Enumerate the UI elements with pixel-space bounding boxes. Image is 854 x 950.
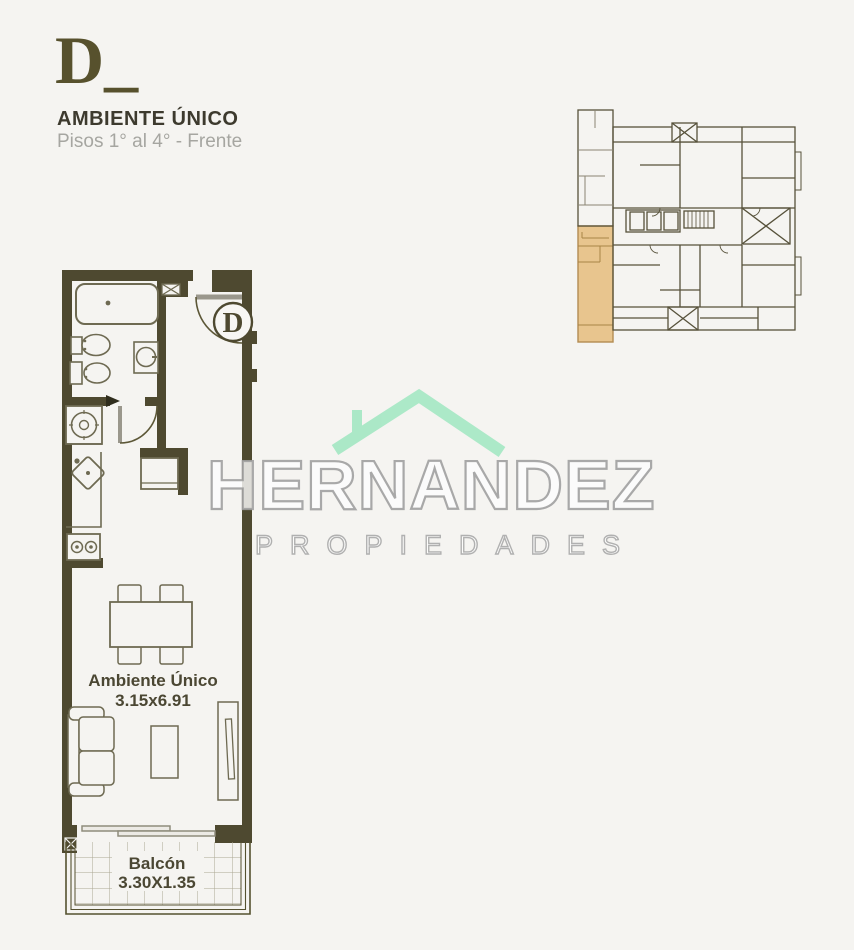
- washbasin: [134, 342, 158, 373]
- dining-table: [110, 602, 192, 647]
- key-plan: [570, 100, 805, 350]
- page-title: AMBIENTE ÚNICO: [57, 108, 238, 131]
- tv-unit: [218, 702, 238, 800]
- kitchen-sink: [71, 456, 105, 490]
- sofa: [68, 707, 114, 796]
- duct-shaft-icon: [162, 284, 180, 295]
- brand-tagline: PROPIEDADES: [255, 532, 637, 559]
- unit-badge-letter: D: [223, 307, 244, 339]
- brand-wordmark: HERNANDEZ: [207, 450, 655, 520]
- page-subtitle: Pisos 1° al 4° - Frente: [57, 131, 242, 153]
- fridge: [141, 458, 178, 489]
- bathtub: [76, 284, 158, 324]
- plan-letter: D_: [55, 26, 138, 94]
- room-label: Ambiente Único: [88, 671, 217, 690]
- toilet: [70, 362, 110, 384]
- balcony-dimensions: 3.30X1.35: [118, 873, 196, 892]
- room-dimensions: 3.15x6.91: [115, 691, 191, 710]
- stove: [67, 534, 100, 560]
- coffee-table: [151, 726, 178, 778]
- unit-badge: D: [214, 303, 252, 341]
- floor-plan-page: D_ AMBIENTE ÚNICO Pisos 1° al 4° - Frent…: [0, 0, 854, 950]
- key-plan-strip-details: [578, 110, 613, 205]
- unit-floor-plan: D Balcón 3.30X1.35 Ambiente Único 3.15x6…: [50, 260, 265, 950]
- sliding-door: [82, 826, 215, 836]
- balcony-label: Balcón: [129, 854, 186, 873]
- washing-machine: [66, 406, 102, 444]
- balcony: Balcón 3.30X1.35: [66, 842, 250, 914]
- bidet: [71, 335, 110, 356]
